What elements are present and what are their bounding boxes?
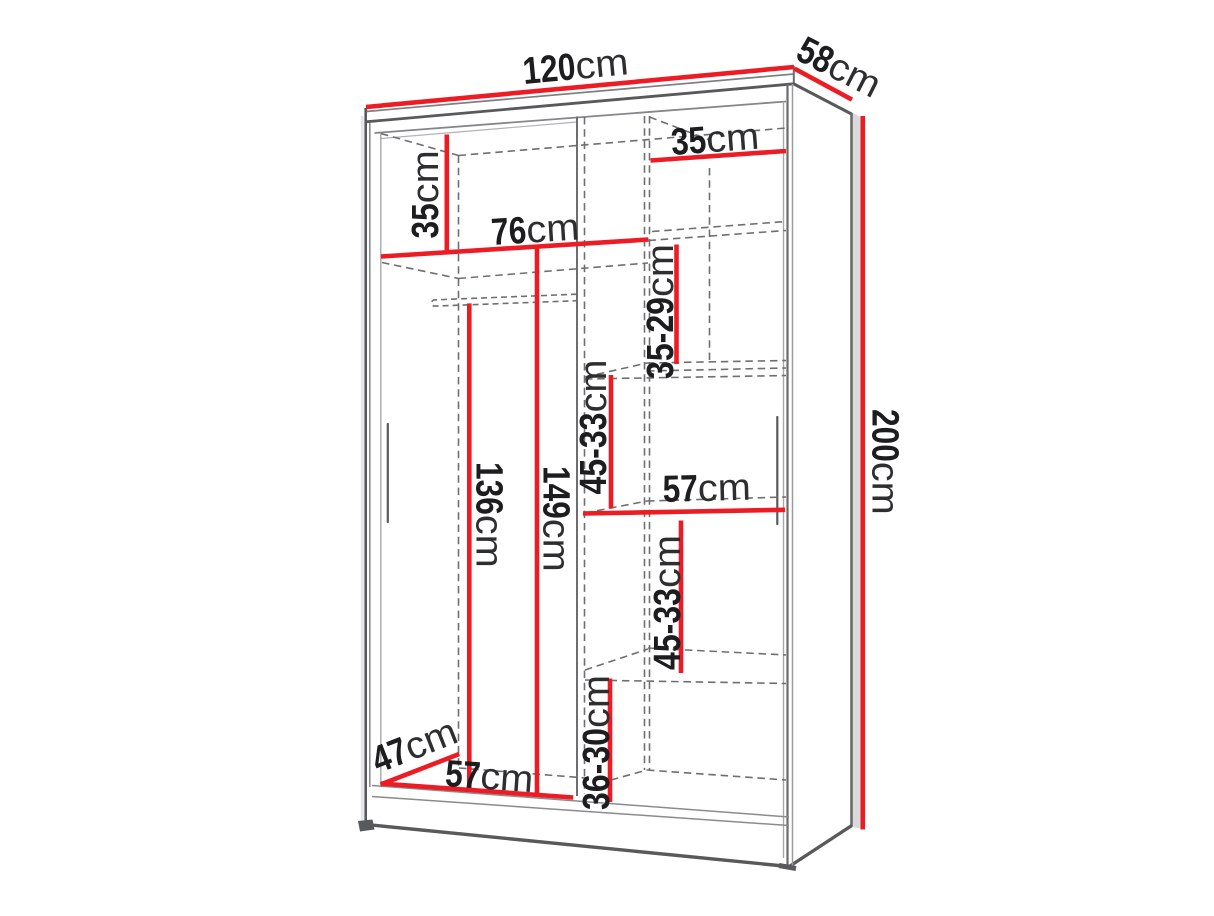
svg-text:57cm: 57cm bbox=[662, 467, 751, 511]
svg-text:35-29cm: 35-29cm bbox=[640, 244, 682, 379]
svg-text:57cm: 57cm bbox=[444, 753, 535, 801]
svg-text:149cm: 149cm bbox=[535, 466, 577, 572]
svg-text:35cm: 35cm bbox=[670, 116, 761, 164]
svg-text:76cm: 76cm bbox=[490, 207, 581, 254]
svg-text:136cm: 136cm bbox=[468, 462, 510, 568]
svg-text:36-30cm: 36-30cm bbox=[576, 675, 618, 810]
svg-text:200cm: 200cm bbox=[864, 409, 906, 515]
svg-text:45-33cm: 45-33cm bbox=[647, 535, 689, 670]
svg-text:35cm: 35cm bbox=[405, 150, 447, 238]
svg-text:45-33cm: 45-33cm bbox=[573, 360, 615, 495]
